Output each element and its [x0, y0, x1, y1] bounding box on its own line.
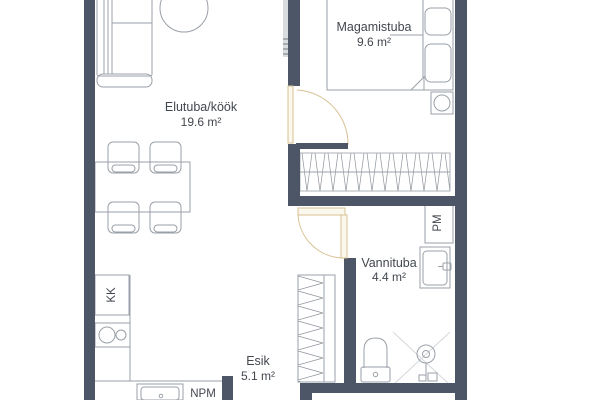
- wall-mid-horizontal: [288, 196, 467, 206]
- dishwasher-label: NPM: [190, 388, 216, 400]
- bedroom-door-arc: [297, 90, 348, 145]
- hall-closet: [298, 275, 335, 382]
- hall-area: 5.1 m²: [241, 369, 275, 383]
- chair: [108, 202, 139, 233]
- bathroom-door-arc: [298, 215, 344, 258]
- wall-bottom-stub: [300, 393, 312, 400]
- fridge-label: KK: [106, 287, 118, 303]
- nightstand-lamp: [434, 95, 450, 111]
- radiator: [283, 0, 288, 57]
- wall-kitchen-stub: [222, 376, 233, 400]
- floorplan-svg: Elutuba/köök 19.6 m² Magamistuba 9.6 m² …: [0, 0, 600, 400]
- living-room-label: Elutuba/köök: [165, 100, 238, 114]
- bedroom-door-closed-leaf: [288, 86, 293, 143]
- sofa: [97, 0, 152, 87]
- duvet-fold: [411, 77, 424, 90]
- bathroom-door-closed-leaf: [341, 215, 347, 258]
- bedroom-wardrobe: [300, 153, 450, 191]
- wall-bottom: [300, 383, 467, 393]
- bathroom-door-open-leaf: [298, 208, 345, 215]
- washing-machine-label: PM: [432, 214, 444, 231]
- pillow: [425, 44, 451, 82]
- wall-left-exterior: [84, 0, 95, 400]
- bathroom-sink: [420, 247, 451, 288]
- living-room-area: 19.6 m²: [181, 115, 222, 129]
- bathroom-door: [298, 208, 347, 258]
- bedroom-label: Magamistuba: [336, 20, 411, 34]
- wall-bathroom-hall: [344, 258, 356, 393]
- floorplan-image: Elutuba/köök 19.6 m² Magamistuba 9.6 m² …: [0, 0, 600, 400]
- round-table: [160, 0, 208, 32]
- chair: [150, 142, 181, 173]
- pillow: [425, 8, 451, 35]
- kitchen-sink: [137, 384, 183, 400]
- bathroom-label: Vannituba: [361, 256, 416, 270]
- shower: [393, 332, 450, 385]
- nightstand: [431, 92, 453, 114]
- chair: [150, 202, 181, 233]
- bedroom-door-open-leaf: [296, 143, 348, 149]
- bedroom-door: [288, 86, 348, 149]
- dining-table: [95, 162, 190, 212]
- stove: [95, 323, 130, 347]
- hall-label: Esik: [246, 354, 270, 368]
- bedroom-area: 9.6 m²: [357, 35, 391, 49]
- toilet: [361, 338, 390, 382]
- bathroom-area: 4.4 m²: [372, 270, 406, 284]
- wall-bedroom-living-upper: [288, 0, 300, 86]
- chair: [108, 142, 139, 173]
